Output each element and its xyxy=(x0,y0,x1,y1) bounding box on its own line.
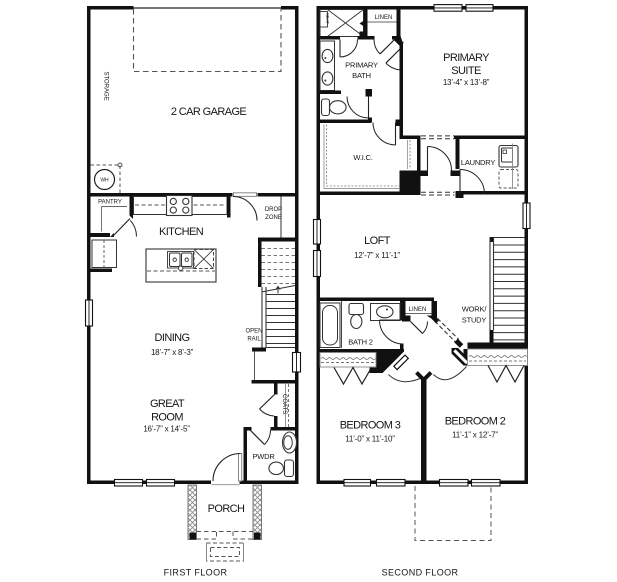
svg-text:W.I.C.: W.I.C. xyxy=(353,153,372,162)
svg-text:LAUNDRY: LAUNDRY xyxy=(461,158,496,167)
svg-text:OPEN: OPEN xyxy=(245,329,262,335)
svg-text:ROOM: ROOM xyxy=(151,412,183,424)
svg-text:18’-7” x 8’-3”: 18’-7” x 8’-3” xyxy=(151,348,194,357)
svg-text:11’-1” x 12’-7”: 11’-1” x 12’-7” xyxy=(452,431,498,440)
svg-text:LINEN: LINEN xyxy=(409,307,427,313)
svg-text:11’-0” x 11’-10”: 11’-0” x 11’-10” xyxy=(345,435,395,444)
svg-text:COATS: COATS xyxy=(281,394,287,414)
svg-text:PRIMARY: PRIMARY xyxy=(345,61,378,70)
svg-text:WH: WH xyxy=(100,178,109,184)
svg-text:FIRST FLOOR: FIRST FLOOR xyxy=(164,568,228,578)
svg-text:13’-4” x 13’-8”: 13’-4” x 13’-8” xyxy=(443,78,490,87)
svg-text:PWDR: PWDR xyxy=(252,452,275,461)
svg-text:RAIL: RAIL xyxy=(247,337,261,343)
svg-text:LINEN: LINEN xyxy=(375,15,393,21)
svg-text:SEAT: SEAT xyxy=(325,13,330,24)
svg-text:ZONE: ZONE xyxy=(265,215,282,221)
svg-text:BEDROOM 2: BEDROOM 2 xyxy=(445,416,506,428)
svg-text:STUDY: STUDY xyxy=(462,316,487,325)
svg-text:STORAGE: STORAGE xyxy=(103,72,109,101)
svg-text:WORK/: WORK/ xyxy=(462,305,488,314)
svg-text:BATH: BATH xyxy=(352,71,371,80)
svg-text:LOFT: LOFT xyxy=(364,235,391,247)
svg-text:BATH 2: BATH 2 xyxy=(348,338,373,347)
svg-text:SUITE: SUITE xyxy=(451,65,481,77)
svg-text:PANTRY: PANTRY xyxy=(98,200,122,206)
svg-text:DINING: DINING xyxy=(155,332,190,344)
svg-text:BEDROOM 3: BEDROOM 3 xyxy=(340,420,401,432)
svg-text:16’-7” x 14’-5”: 16’-7” x 14’-5” xyxy=(143,425,190,434)
svg-text:KITCHEN: KITCHEN xyxy=(159,226,204,238)
svg-text:GREAT: GREAT xyxy=(150,398,185,410)
svg-text:SECOND FLOOR: SECOND FLOOR xyxy=(382,568,459,578)
svg-text:2 CAR GARAGE: 2 CAR GARAGE xyxy=(171,106,247,118)
svg-text:DROP: DROP xyxy=(265,207,282,213)
svg-text:PRIMARY: PRIMARY xyxy=(443,52,490,64)
svg-text:PORCH: PORCH xyxy=(208,503,245,515)
svg-text:12’-7” x 11’-1”: 12’-7” x 11’-1” xyxy=(354,251,400,260)
